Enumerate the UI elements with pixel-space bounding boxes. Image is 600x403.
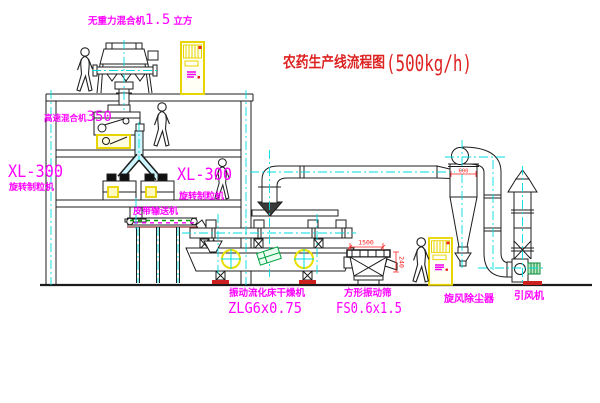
gravity-free-mixer bbox=[93, 43, 158, 110]
dim-240-text: 240 bbox=[398, 256, 406, 268]
diagram-title: 农药生产线流程图 bbox=[282, 53, 385, 71]
label-gravity-mixer: 无重力混合机1.5立方 bbox=[87, 12, 193, 28]
label-fan: 引风机 bbox=[514, 289, 544, 302]
vibrating-sieve bbox=[347, 250, 397, 284]
worker-figure-4 bbox=[413, 238, 429, 282]
label-belt-conveyor: 皮带输送机 bbox=[132, 205, 178, 216]
label-granulator-right-model: XL-300 bbox=[177, 165, 232, 185]
label-granulator-left-model: XL-300 bbox=[8, 162, 63, 182]
dim-600-text: 600 bbox=[459, 169, 469, 175]
worker-figure-1 bbox=[77, 48, 93, 91]
label-sieve-name: 方形振动筛 bbox=[344, 287, 392, 299]
label-high-speed-mixer: 高速混合机350 bbox=[44, 109, 112, 125]
label-dryer-name: 振动流化床干燥机 bbox=[229, 287, 306, 299]
label-granulator-right-name: 旋转制粒机 bbox=[178, 190, 224, 201]
cad-flow-diagram: 1500 240 600 无重力混合机1.5立方 农药生产线流程图 (500kg… bbox=[0, 0, 600, 403]
label-cyclone: 旋风除尘器 bbox=[443, 292, 495, 305]
label-sieve-model: FS0.6x1.5 bbox=[336, 299, 402, 317]
worker-figure-2 bbox=[154, 103, 170, 146]
control-cabinet-right bbox=[429, 238, 452, 285]
label-granulator-left-name: 旋转制粒机 bbox=[8, 181, 54, 192]
dim-1500-text: 1500 bbox=[358, 239, 374, 247]
induced-draft-fan bbox=[507, 259, 542, 285]
label-dryer-model: ZLG6x0.75 bbox=[228, 299, 302, 317]
control-cabinet-top bbox=[181, 42, 204, 94]
drawing-canvas: 1500 240 600 无重力混合机1.5立方 农药生产线流程图 (500kg… bbox=[0, 0, 600, 403]
diagram-capacity: (500kg/h) bbox=[386, 52, 472, 77]
